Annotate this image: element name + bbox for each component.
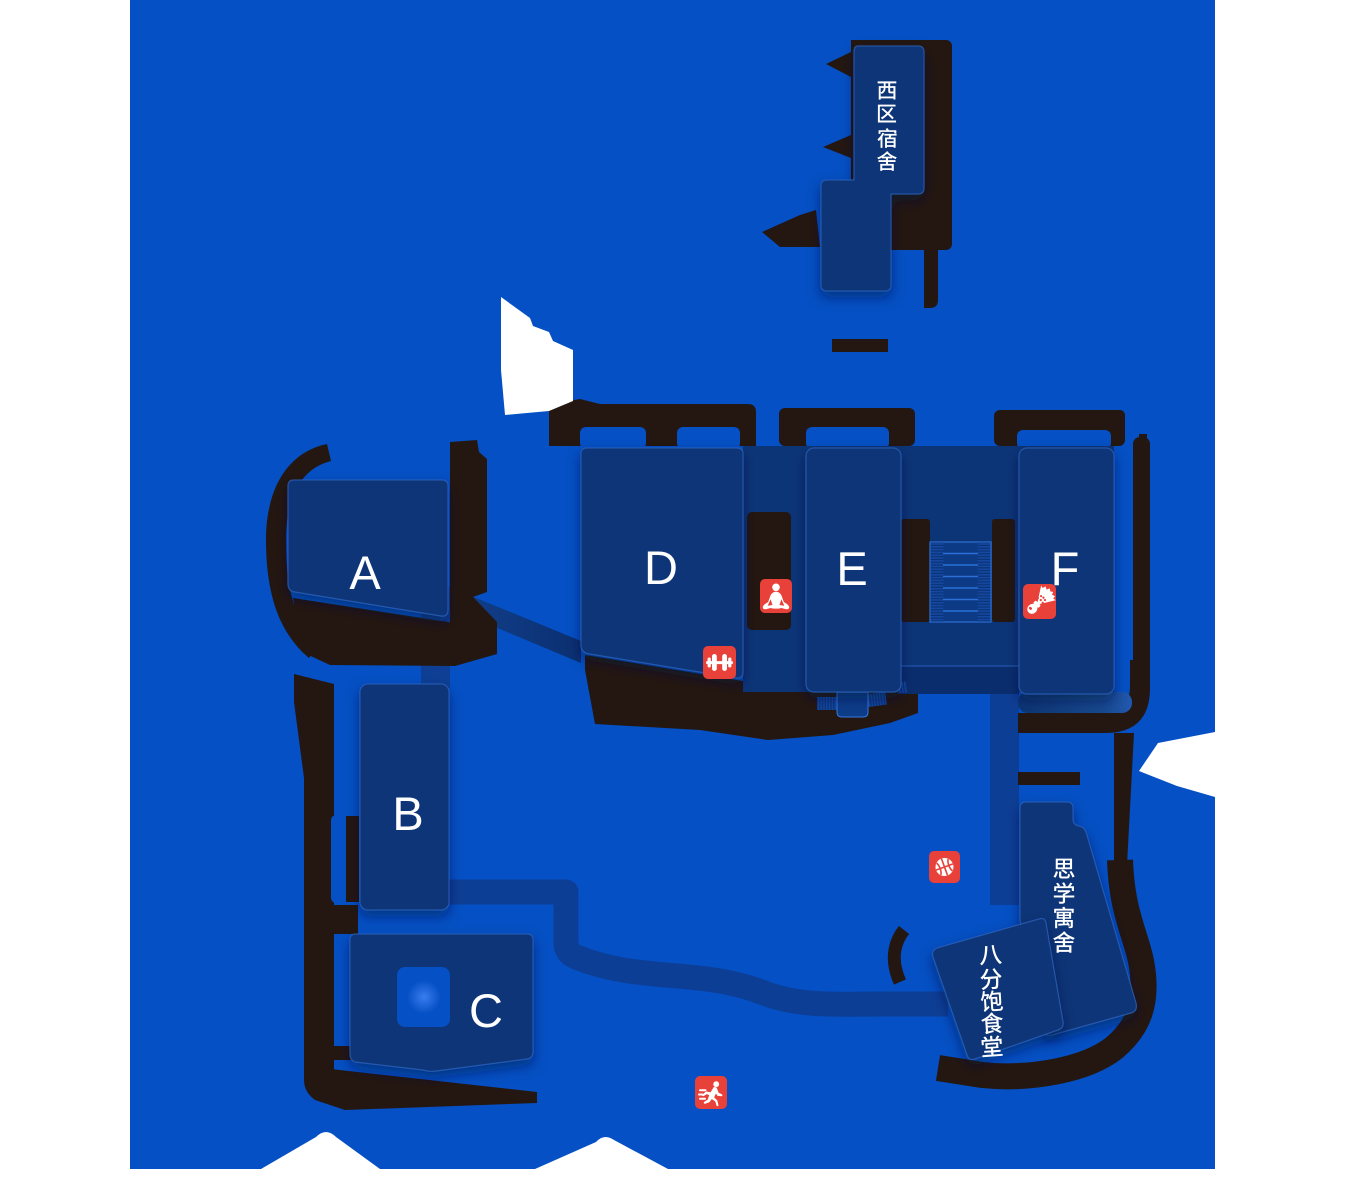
svg-text:E: E bbox=[836, 542, 867, 595]
svg-text:D: D bbox=[644, 541, 678, 594]
svg-text:B: B bbox=[392, 787, 423, 840]
svg-text:A: A bbox=[349, 546, 381, 599]
svg-text:C: C bbox=[469, 984, 503, 1037]
